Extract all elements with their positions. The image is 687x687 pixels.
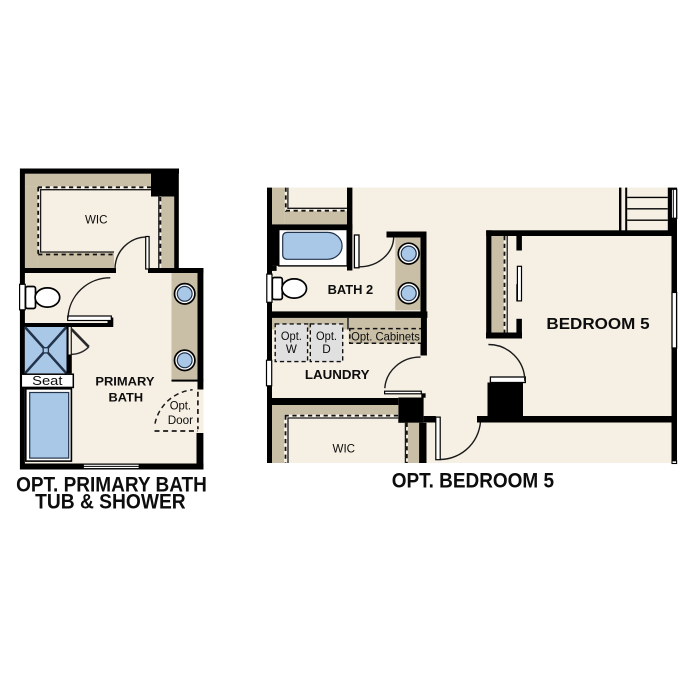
svg-text:W: W (286, 343, 297, 356)
svg-text:BATH 2: BATH 2 (328, 282, 374, 297)
svg-text:Door: Door (168, 413, 193, 427)
svg-text:Opt.: Opt. (316, 330, 337, 343)
svg-text:TUB & SHOWER: TUB & SHOWER (35, 490, 186, 513)
svg-text:OPT. BEDROOM 5: OPT. BEDROOM 5 (392, 470, 555, 493)
svg-text:D: D (322, 343, 331, 356)
svg-text:Opt.: Opt. (281, 330, 302, 343)
svg-text:Opt. Cabinets: Opt. Cabinets (351, 331, 420, 344)
svg-text:Opt.: Opt. (170, 399, 191, 413)
svg-text:BATH: BATH (109, 393, 144, 405)
svg-text:WIC: WIC (333, 441, 356, 455)
svg-text:BEDROOM 5: BEDROOM 5 (546, 316, 650, 333)
svg-text:WIC: WIC (85, 213, 108, 227)
svg-text:Seat: Seat (32, 373, 63, 388)
svg-text:PRIMARY: PRIMARY (95, 376, 154, 388)
svg-text:LAUNDRY: LAUNDRY (305, 367, 370, 382)
